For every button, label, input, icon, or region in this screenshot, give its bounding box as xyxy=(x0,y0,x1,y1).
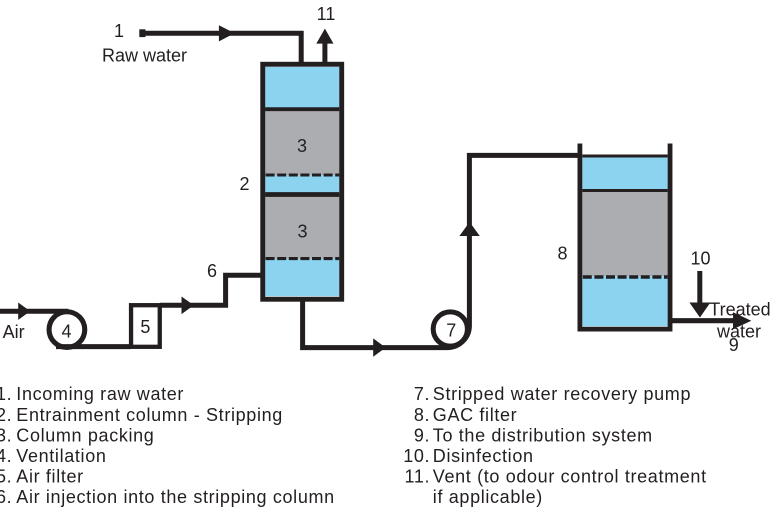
svg-text:Stripped water recovery pump: Stripped water recovery pump xyxy=(433,384,691,404)
svg-text:3: 3 xyxy=(297,222,307,242)
svg-text:11.: 11. xyxy=(405,467,431,487)
svg-text:5: 5 xyxy=(140,317,150,337)
svg-text:10: 10 xyxy=(690,249,710,269)
svg-text:Vent (to odour control treatme: Vent (to odour control treatment xyxy=(433,467,707,487)
svg-text:8: 8 xyxy=(557,243,567,263)
svg-text:4: 4 xyxy=(61,322,71,342)
svg-text:10.: 10. xyxy=(403,446,430,466)
svg-text:Entrainment column - Stripping: Entrainment column - Stripping xyxy=(16,405,283,425)
svg-text:4.: 4. xyxy=(0,446,12,466)
svg-text:7: 7 xyxy=(446,321,456,341)
svg-text:1.: 1. xyxy=(0,384,12,404)
svg-text:9.: 9. xyxy=(414,425,430,445)
svg-text:Air filter: Air filter xyxy=(16,467,84,487)
svg-text:Incoming raw water: Incoming raw water xyxy=(16,384,184,404)
svg-text:Ventilation: Ventilation xyxy=(16,446,106,466)
svg-text:3: 3 xyxy=(297,136,307,156)
svg-text:9: 9 xyxy=(729,335,739,355)
svg-text:6: 6 xyxy=(207,261,217,281)
svg-text:Raw water: Raw water xyxy=(102,46,187,66)
svg-text:2.: 2. xyxy=(0,405,12,425)
svg-text:Air injection into the strippi: Air injection into the stripping column xyxy=(16,487,335,507)
svg-text:3.: 3. xyxy=(0,425,12,445)
svg-text:Column packing: Column packing xyxy=(16,425,154,445)
svg-text:if applicable): if applicable) xyxy=(433,487,543,507)
svg-text:11: 11 xyxy=(317,4,336,24)
svg-text:Treated: Treated xyxy=(709,300,770,320)
svg-text:Disinfection: Disinfection xyxy=(433,446,534,466)
svg-text:Air: Air xyxy=(3,322,25,342)
svg-text:5.: 5. xyxy=(0,467,12,487)
svg-text:To the distribution system: To the distribution system xyxy=(433,425,653,445)
svg-text:GAC filter: GAC filter xyxy=(433,405,518,425)
svg-text:8.: 8. xyxy=(414,405,430,425)
svg-text:6.: 6. xyxy=(0,487,12,507)
svg-text:1: 1 xyxy=(114,21,124,41)
svg-text:7.: 7. xyxy=(414,384,430,404)
svg-text:2: 2 xyxy=(239,174,249,194)
